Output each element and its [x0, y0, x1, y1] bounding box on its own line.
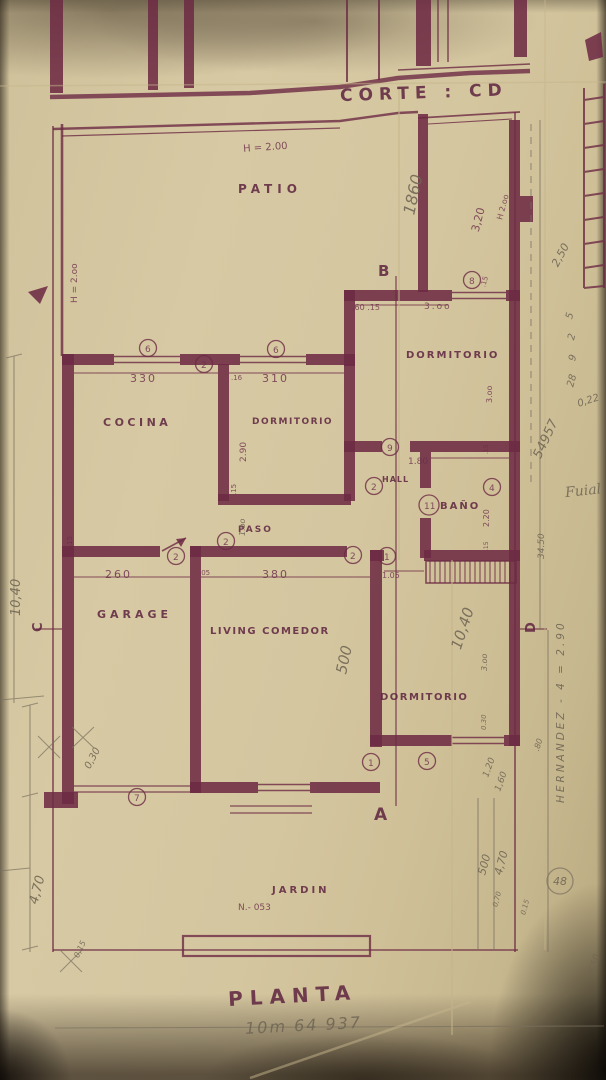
margin-right-022: 0,22: [576, 392, 601, 409]
dim-60-15: .60 .15: [352, 303, 380, 312]
dim-05: .05: [199, 569, 210, 577]
window-dormitorio-1: [452, 293, 506, 299]
room-label-cocina: COCINA: [103, 416, 171, 429]
margin-right-5: 5: [564, 311, 576, 320]
dim-380: 380: [262, 568, 289, 581]
garden-fence-panel: [183, 936, 370, 956]
porch-step: [230, 806, 312, 813]
margin-left-030: 0,30: [83, 746, 103, 771]
margin-right-2: 2: [566, 332, 578, 341]
lot-number: N.- 053: [238, 903, 271, 913]
circled-11: 11: [424, 502, 435, 512]
dim-h200-patio: H = 2.00: [243, 141, 288, 155]
room-label-dormitorio-3: DORMITORIO: [380, 692, 468, 703]
dim-290: 2.90: [239, 442, 249, 462]
circled-2-c: 2: [173, 553, 179, 563]
room-label-dormitorio-2: DORMITORIO: [252, 417, 333, 427]
ink-blot: [585, 32, 603, 61]
dim-220: 2.20: [482, 509, 491, 527]
circled-2-a: 2: [201, 361, 207, 371]
margin-left-1040: 10,40: [9, 579, 24, 616]
room-label-jardin: JARDIN: [271, 885, 330, 896]
dim-030-dorm3: 0.30: [480, 714, 488, 730]
dim-180: 1.80: [408, 457, 428, 467]
dim-310: 310: [262, 372, 289, 385]
closet-hatch: [426, 561, 516, 583]
margin-right-470: 4,70: [492, 849, 511, 876]
dim-300-dorm3: 3.oo: [480, 653, 489, 671]
room-label-living: LIVING COMEDOR: [210, 626, 330, 637]
dim-330: 330: [130, 372, 157, 385]
circled-2-e: 2: [350, 552, 356, 562]
margin-right-3450: 34.50: [537, 533, 547, 559]
dim-500-living: 500: [332, 644, 356, 676]
margin-right-hernandez: HERNANDEZ - 4 = 2.90: [555, 620, 567, 803]
margin-right-160: 1,60: [493, 770, 509, 793]
room-label-patio: PATIO: [238, 182, 302, 196]
circled-2-d: 2: [223, 538, 229, 548]
house-walls: [28, 114, 533, 813]
dim-300-right: 3.oo: [485, 385, 494, 403]
window-dormitorio-3: [452, 738, 504, 744]
circled-1-b: 1: [368, 759, 374, 769]
dim-15-divider: .15: [230, 484, 238, 495]
room-label-bano: BAÑO: [440, 499, 480, 512]
dim-260: 260: [105, 568, 132, 581]
margin-right-fuial: Fuial: [563, 481, 602, 501]
marker-a: A: [374, 805, 388, 825]
plan-title: PLANTA: [228, 980, 358, 1011]
dim-105: 1.05: [382, 571, 400, 580]
dim-250-side: 2,50: [549, 241, 572, 269]
circled-1-a: 1: [384, 553, 390, 563]
margin-right-80: .80: [532, 737, 544, 752]
dim-300-top: 3.oo: [424, 302, 452, 312]
margin-right-54957: 54957: [531, 417, 562, 461]
circled-6-b: 6: [273, 346, 279, 356]
room-label-garage: GARAGE: [97, 608, 172, 621]
circled-48: 48: [553, 875, 567, 888]
circled-6-a: 6: [145, 345, 151, 355]
marker-d: D: [524, 622, 539, 633]
dim-15-left: .15: [66, 536, 74, 547]
door-swing-arrow: [162, 538, 186, 551]
dim-320: 3,20: [469, 206, 488, 233]
circled-4: 4: [489, 484, 495, 494]
circled-9: 9: [387, 444, 393, 454]
dim-h200-left: H = 2.oo: [70, 263, 80, 303]
marker-b: B: [378, 262, 389, 280]
margin-right-250-bottom: 2.50: [588, 953, 603, 975]
dim-15-bano-top: .15: [483, 444, 490, 454]
dim-100-paso: 1.oo: [238, 518, 247, 536]
blueprint-photo: CORTE : CD PLANTA 10m 64 937 PATIO COCIN…: [0, 0, 606, 1080]
plan-note: 10m 64 937: [245, 1013, 363, 1038]
window-cocina: [114, 357, 180, 363]
room-label-hall: HALL: [382, 475, 409, 484]
margin-arrow: [28, 286, 48, 304]
margin-right-28: 28: [565, 373, 579, 388]
room-label-dormitorio-1: DORMITORIO: [406, 350, 499, 361]
dim-h200-side: H 2.oo: [495, 193, 510, 221]
margin-right-120: 1.20: [481, 756, 497, 779]
window-living: [258, 785, 310, 791]
garage-gate: [74, 786, 190, 792]
property-boundary: [53, 112, 520, 956]
marker-c: C: [31, 622, 46, 632]
margin-right-070: 0,70: [491, 890, 503, 908]
circled-8: 8: [469, 277, 475, 287]
dim-15-bano-bottom: .15: [483, 541, 490, 551]
circled-7: 7: [134, 794, 140, 804]
dim-16: .16: [231, 374, 243, 382]
circled-2-b: 2: [371, 483, 377, 493]
circled-5: 5: [424, 758, 430, 768]
margin-right-9: 9: [567, 353, 579, 362]
hatched-wall-strip: [584, 84, 604, 288]
margin-right-015: 0.15: [519, 898, 531, 916]
